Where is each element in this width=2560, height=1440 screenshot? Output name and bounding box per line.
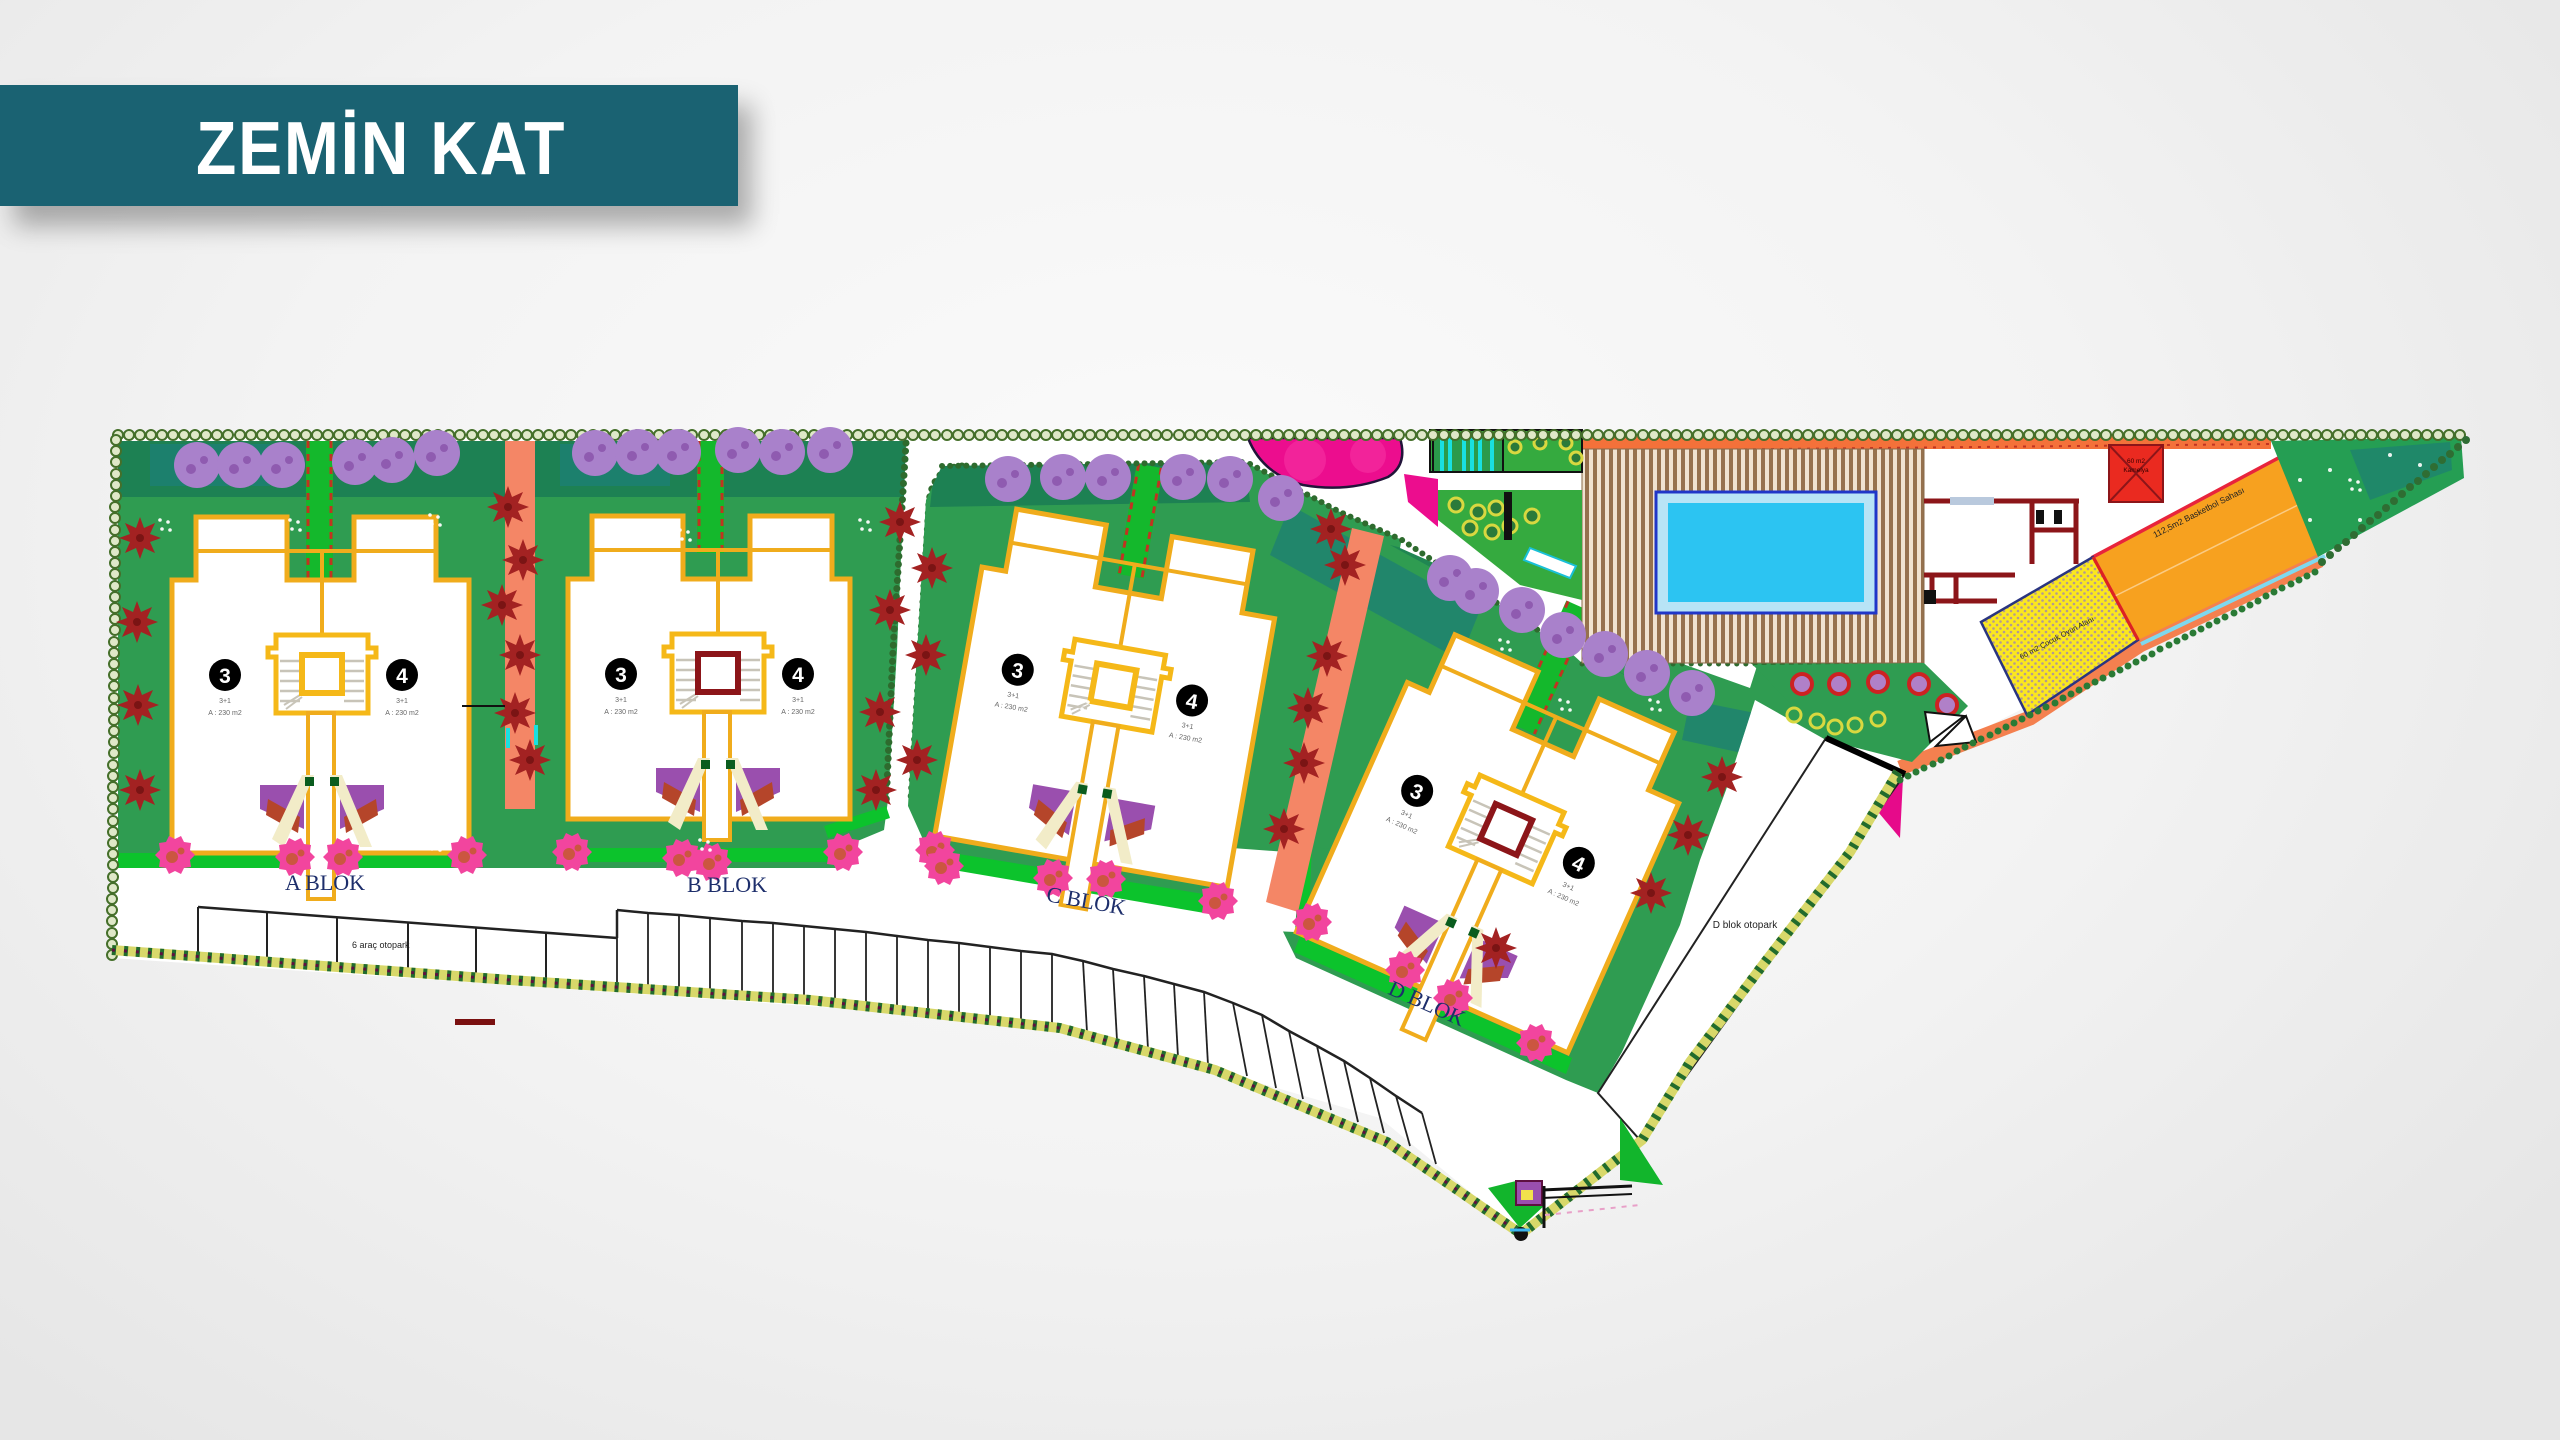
svg-text:D blok otopark: D blok otopark xyxy=(1713,920,1778,931)
svg-text:Kamelya: Kamelya xyxy=(2123,467,2149,474)
svg-text:A : 230 m2: A : 230 m2 xyxy=(781,709,815,716)
svg-text:3: 3 xyxy=(219,665,231,688)
svg-text:3+1: 3+1 xyxy=(396,698,408,705)
svg-text:3+1: 3+1 xyxy=(615,697,627,704)
svg-text:A : 230 m2: A : 230 m2 xyxy=(604,709,638,716)
svg-text:4: 4 xyxy=(792,664,804,687)
svg-text:B BLOK: B BLOK xyxy=(687,872,767,897)
svg-text:6 araç otopark: 6 araç otopark xyxy=(352,940,410,950)
svg-text:3+1: 3+1 xyxy=(792,697,804,704)
svg-text:3: 3 xyxy=(615,664,627,687)
svg-text:A BLOK: A BLOK xyxy=(285,870,365,895)
svg-text:A : 230 m2: A : 230 m2 xyxy=(385,710,419,717)
svg-text:60 m2: 60 m2 xyxy=(2127,458,2145,465)
svg-text:A : 230 m2: A : 230 m2 xyxy=(208,710,242,717)
svg-text:3+1: 3+1 xyxy=(219,698,231,705)
svg-text:4: 4 xyxy=(396,665,408,688)
